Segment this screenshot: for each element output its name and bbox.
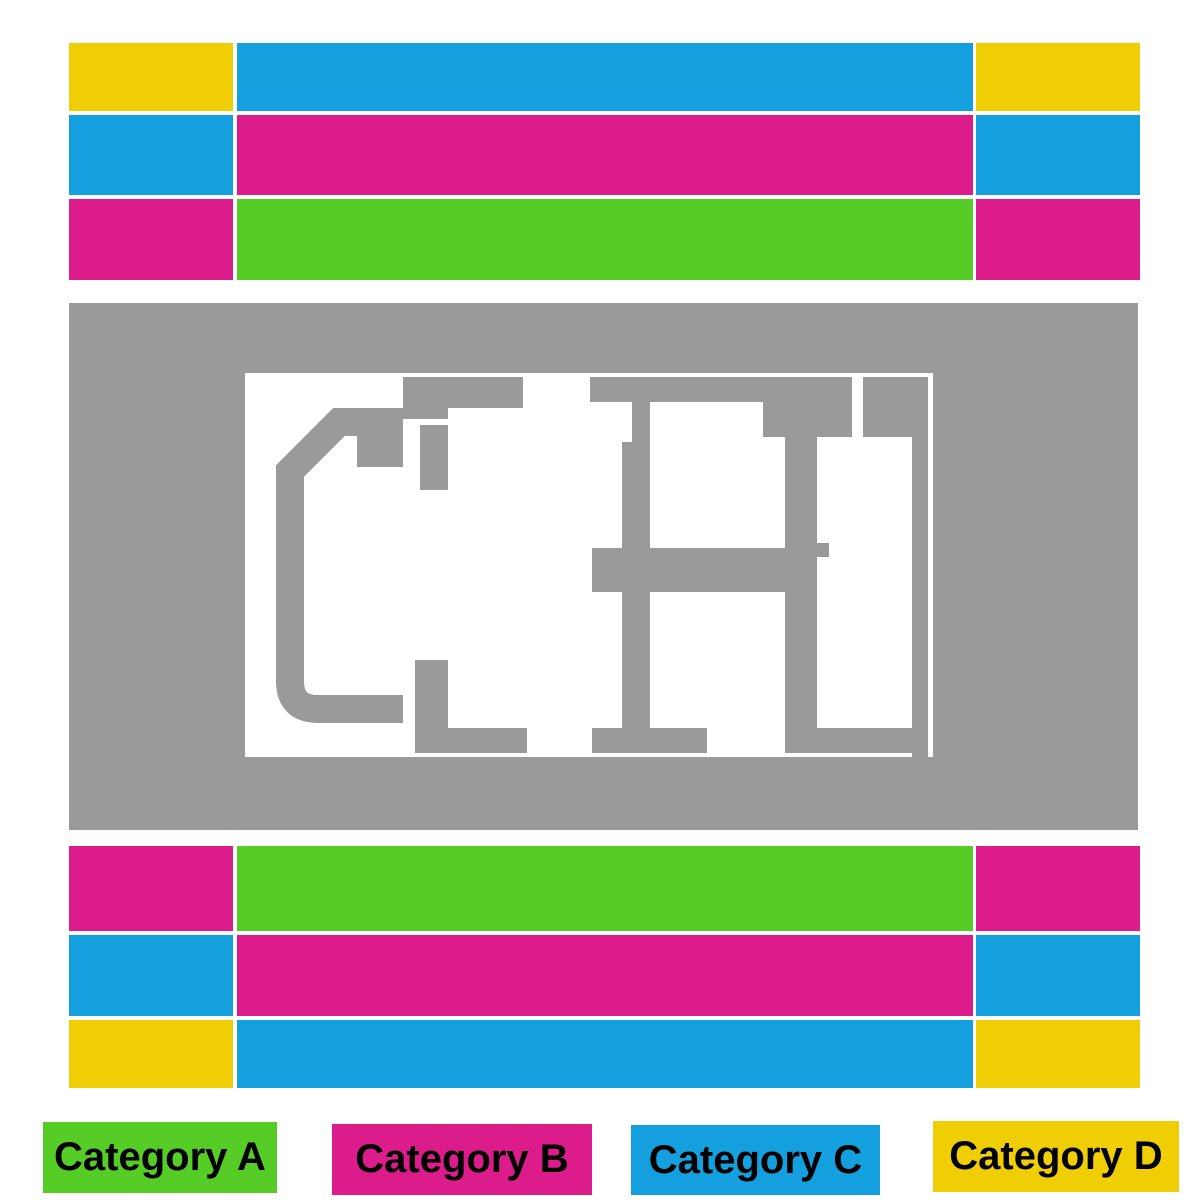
seat-block-top-row1-left[interactable] bbox=[69, 43, 233, 111]
seat-block-bottom-row3-left[interactable] bbox=[69, 1020, 233, 1088]
legend-label: Category B bbox=[355, 1137, 568, 1182]
seat-block-bottom-row2-center[interactable] bbox=[237, 935, 973, 1016]
seat-block-bottom-row2-left[interactable] bbox=[69, 935, 233, 1016]
seat-block-bottom-row1-right[interactable] bbox=[976, 846, 1140, 931]
legend-item-category-a: Category A bbox=[43, 1122, 277, 1193]
seat-block-bottom-row1-left[interactable] bbox=[69, 846, 233, 931]
seat-block-bottom-row1-center[interactable] bbox=[237, 846, 973, 931]
seat-block-top-row1-right[interactable] bbox=[976, 43, 1140, 111]
seat-block-top-row2-left[interactable] bbox=[69, 115, 233, 195]
venue-map bbox=[69, 303, 1138, 830]
legend-label: Category C bbox=[649, 1138, 862, 1183]
seat-block-bottom-row3-center[interactable] bbox=[237, 1020, 973, 1088]
seat-block-top-row3-left[interactable] bbox=[69, 199, 233, 280]
legend-label: Category D bbox=[949, 1134, 1162, 1179]
stage-floor-plan-svg bbox=[69, 303, 1138, 830]
seat-block-top-row3-center[interactable] bbox=[237, 199, 973, 280]
seat-block-top-row3-right[interactable] bbox=[976, 199, 1140, 280]
legend-item-category-b: Category B bbox=[332, 1124, 592, 1195]
seat-block-top-row1-center[interactable] bbox=[237, 43, 973, 111]
legend-item-category-c: Category C bbox=[631, 1125, 880, 1195]
seat-block-bottom-row2-right[interactable] bbox=[976, 935, 1140, 1016]
seat-block-bottom-row3-right[interactable] bbox=[976, 1020, 1140, 1088]
seat-block-top-row2-center[interactable] bbox=[237, 115, 973, 195]
seat-block-top-row2-right[interactable] bbox=[976, 115, 1140, 195]
legend-label: Category A bbox=[54, 1135, 266, 1180]
legend-item-category-d: Category D bbox=[933, 1121, 1179, 1192]
